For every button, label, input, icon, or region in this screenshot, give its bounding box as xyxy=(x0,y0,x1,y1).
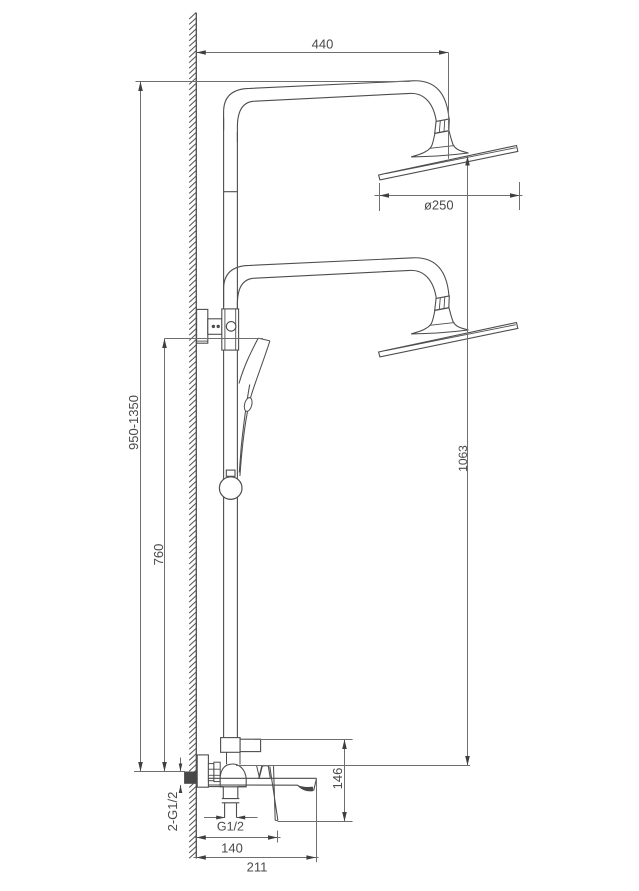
svg-text:146: 146 xyxy=(330,768,345,790)
svg-text:2-G1/2: 2-G1/2 xyxy=(165,792,180,832)
svg-text:1063: 1063 xyxy=(456,445,470,472)
svg-text:ø250: ø250 xyxy=(424,198,454,213)
svg-text:211: 211 xyxy=(247,859,268,874)
svg-text:950-1350: 950-1350 xyxy=(126,395,141,450)
svg-text:760: 760 xyxy=(151,544,166,566)
svg-text:440: 440 xyxy=(312,36,334,51)
svg-text:140: 140 xyxy=(221,841,243,856)
svg-text:G1/2: G1/2 xyxy=(217,819,244,833)
